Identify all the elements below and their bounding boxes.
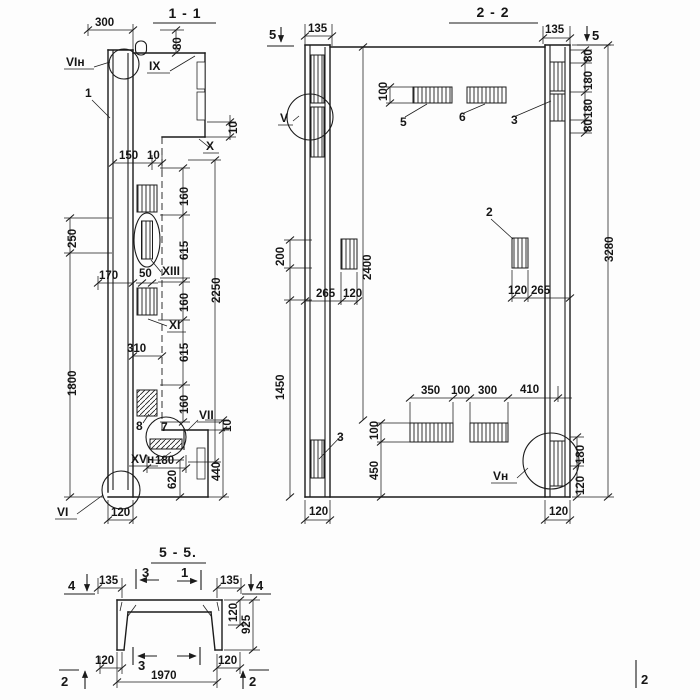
dim-2250: 2250 — [211, 277, 223, 303]
dim-150: 150 — [119, 150, 138, 162]
dim-80-b: 80 — [583, 119, 595, 132]
callouts-1-1: VIн 1 IX X XIII XI VII XVн VI 7 8 — [55, 55, 220, 519]
cut-marker-1-top: 1 — [181, 565, 188, 580]
dim-120-right-mid: 120 — [508, 285, 527, 297]
dim-620: 620 — [167, 470, 179, 489]
part-label-2: 2 — [486, 205, 493, 219]
dim-615-a: 615 — [179, 240, 191, 260]
embed-plate — [137, 185, 157, 212]
dim-135-left: 135 — [308, 23, 328, 35]
dim-80-a: 80 — [583, 49, 595, 62]
callout-xi: XI — [169, 318, 180, 332]
dim-265-right: 265 — [531, 285, 551, 297]
dim-135-right: 135 — [545, 24, 565, 36]
dim-120: 120 — [111, 507, 130, 519]
dim-100-bot: 100 — [369, 421, 381, 440]
section-2-2-title: 2 - 2 — [476, 4, 509, 20]
callout-vii: VII — [199, 408, 214, 422]
drawing-page: 1 - 1 — [0, 0, 700, 700]
dim-120-bottom-right: 120 — [549, 506, 568, 518]
embed-slot — [142, 221, 153, 259]
embed-bar-6 — [467, 87, 506, 103]
part-label-6: 6 — [459, 110, 466, 124]
dim-440: 440 — [211, 462, 223, 481]
dim-100-top: 100 — [378, 82, 390, 101]
section-1-1-title: 1 - 1 — [168, 5, 201, 21]
dim-1450: 1450 — [275, 374, 287, 400]
dim-925: 925 — [241, 614, 253, 634]
cut-marker-2-corner: 2 — [641, 672, 648, 687]
dim-120-bottom-left: 120 — [309, 506, 328, 518]
dim-120-bot-right-col: 120 — [575, 476, 587, 495]
edge-groove — [197, 92, 205, 120]
cut-marker-3-bottom: 3 — [138, 658, 145, 673]
panel-web-outline — [108, 41, 208, 497]
edge-groove — [197, 62, 205, 89]
dim-160-c: 160 — [179, 395, 191, 414]
dim-10-mid: 10 — [147, 150, 160, 162]
dim-410: 410 — [520, 384, 539, 396]
part-label-8: 8 — [136, 419, 143, 433]
embed-bar-3-left — [311, 440, 324, 478]
dim-200: 200 — [275, 247, 287, 266]
dim-135-right: 135 — [220, 575, 240, 587]
corner-cut-mark: 2 — [636, 660, 648, 688]
dim-160-a: 160 — [179, 187, 191, 206]
cut-marker-5-right: 5 — [592, 28, 599, 43]
cut-marker-4-left: 4 — [68, 578, 76, 593]
section-2-2: 2 - 2 — [267, 4, 616, 524]
embed-plate — [137, 288, 157, 315]
dim-100-mid: 100 — [451, 385, 470, 397]
callout-v: V — [280, 111, 288, 125]
dim-3280: 3280 — [604, 236, 616, 262]
callout-vin: VIн — [66, 55, 85, 69]
cut-marker-2-left: 2 — [61, 674, 68, 689]
callout-xvn: XVн — [131, 452, 154, 466]
dim-80: 80 — [172, 37, 184, 50]
section-5-5-title: 5 - 5. — [159, 544, 197, 560]
dim-265-left: 265 — [316, 288, 336, 300]
dim-50: 50 — [139, 268, 152, 280]
dim-120-bottom-left: 120 — [95, 655, 114, 667]
dim-250: 250 — [67, 229, 79, 248]
dim-300: 300 — [95, 17, 114, 29]
dim-10-top: 10 — [228, 121, 240, 134]
dim-10-bot: 10 — [222, 419, 234, 432]
callout-ix: IX — [149, 59, 160, 73]
bearing-plate-7 — [150, 439, 182, 449]
dim-1800: 1800 — [67, 370, 79, 396]
cut-marker-3-top: 3 — [142, 565, 149, 580]
embedded-parts-2-2 — [287, 55, 579, 489]
dim-180-bot: 180 — [575, 445, 587, 464]
dim-615-b: 615 — [179, 342, 191, 362]
embed-bar-vn — [550, 441, 565, 486]
dim-160-b: 160 — [179, 293, 191, 312]
part-label-1: 1 — [85, 86, 92, 100]
callout-vi: VI — [57, 505, 68, 519]
dim-350: 350 — [421, 385, 440, 397]
embed-bar-5 — [413, 87, 452, 103]
dim-180-a: 180 — [583, 71, 595, 90]
part-label-7: 7 — [161, 420, 168, 434]
dim-2400: 2400 — [362, 254, 374, 280]
dim-135-left: 135 — [99, 575, 119, 587]
edge-groove — [197, 448, 205, 479]
dim-300: 300 — [478, 385, 497, 397]
section-1-1: 1 - 1 — [55, 5, 240, 524]
dim-120-bottom-right: 120 — [218, 655, 237, 667]
section-5-5: 5 - 5. — [59, 544, 271, 689]
callout-vn: Vн — [493, 469, 508, 483]
dim-170: 170 — [99, 270, 118, 282]
part-label-3-top: 3 — [511, 113, 518, 127]
drawing-canvas: 1 - 1 — [0, 0, 700, 700]
part-label-5: 5 — [400, 115, 407, 129]
channel-profile — [117, 600, 222, 650]
dim-1970: 1970 — [151, 670, 177, 682]
embed-bar-2 — [512, 238, 528, 268]
embed-plate-8 — [137, 390, 157, 416]
dim-120-left-mid: 120 — [343, 288, 362, 300]
cut-marker-2-right: 2 — [249, 674, 256, 689]
dim-120-right: 120 — [228, 603, 240, 622]
dims-5-5 — [94, 578, 260, 688]
callout-xiii: XIII — [162, 264, 180, 278]
cut-marker-5-left: 5 — [269, 27, 276, 42]
dim-450: 450 — [369, 461, 381, 480]
dim-180-b: 180 — [583, 99, 595, 118]
dim-310: 310 — [127, 343, 146, 355]
cut-marker-4-right: 4 — [256, 578, 264, 593]
